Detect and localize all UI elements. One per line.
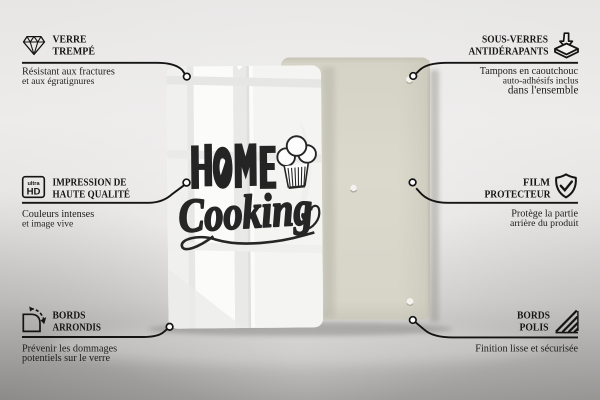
svg-text:BORDS: BORDS bbox=[517, 310, 550, 322]
svg-text:Couleurs intenses: Couleurs intenses bbox=[22, 209, 94, 220]
svg-text:IMPRESSION DE: IMPRESSION DE bbox=[53, 177, 127, 189]
svg-text:HAUTE QUALITÉ: HAUTE QUALITÉ bbox=[53, 189, 131, 201]
svg-text:dans l'ensemble: dans l'ensemble bbox=[508, 84, 579, 96]
svg-text:Résistant aux fractures: Résistant aux fractures bbox=[22, 67, 115, 78]
svg-text:Tampons en caoutchouc: Tampons en caoutchouc bbox=[480, 66, 579, 77]
svg-text:arrière du produit: arrière du produit bbox=[510, 218, 579, 229]
svg-text:POLIS: POLIS bbox=[520, 322, 549, 334]
svg-text:BORDS: BORDS bbox=[53, 310, 86, 322]
svg-text:TREMPÉ: TREMPÉ bbox=[53, 46, 96, 58]
svg-text:Finition lisse et sécurisée: Finition lisse et sécurisée bbox=[475, 343, 578, 354]
svg-text:FILM: FILM bbox=[523, 177, 551, 189]
svg-text:et aux égratignures: et aux égratignures bbox=[22, 77, 95, 87]
svg-text:PROTECTEUR: PROTECTEUR bbox=[485, 189, 552, 201]
svg-text:SOUS-VERRES: SOUS-VERRES bbox=[482, 34, 548, 46]
svg-text:ARRONDIS: ARRONDIS bbox=[53, 322, 102, 334]
svg-text:et image vive: et image vive bbox=[22, 219, 73, 229]
svg-text:HD: HD bbox=[27, 187, 41, 198]
svg-text:potentiels sur le verre: potentiels sur le verre bbox=[22, 353, 110, 364]
svg-text:ANTIDÉRAPANTS: ANTIDÉRAPANTS bbox=[469, 46, 549, 58]
svg-text:VERRE: VERRE bbox=[53, 34, 87, 46]
